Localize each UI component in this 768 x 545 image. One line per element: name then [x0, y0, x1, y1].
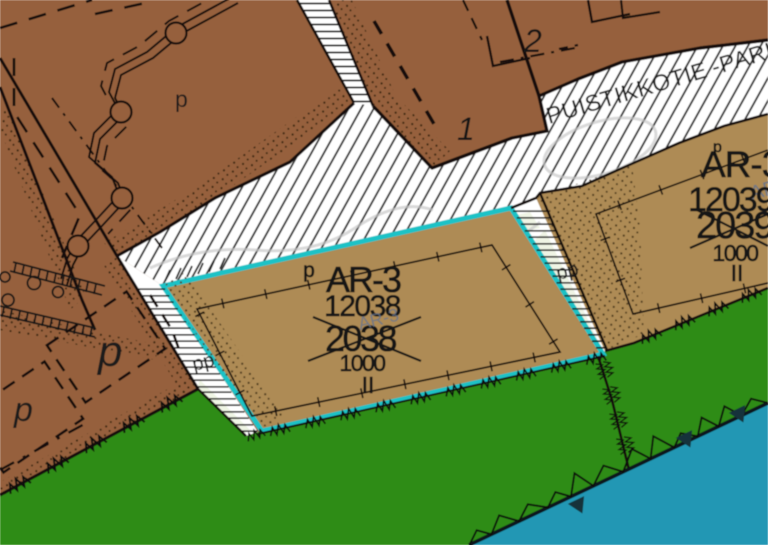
svg-text:p: p [713, 139, 722, 156]
svg-text:II: II [362, 372, 375, 398]
svg-text:p: p [303, 259, 315, 282]
svg-text:2: 2 [523, 23, 542, 59]
svg-text:p: p [13, 391, 33, 429]
svg-text:p: p [175, 86, 188, 112]
svg-text:AR-3: AR-3 [701, 144, 768, 185]
svg-text:II: II [731, 260, 744, 286]
svg-text:1: 1 [457, 111, 475, 147]
svg-text:p: p [96, 327, 122, 376]
